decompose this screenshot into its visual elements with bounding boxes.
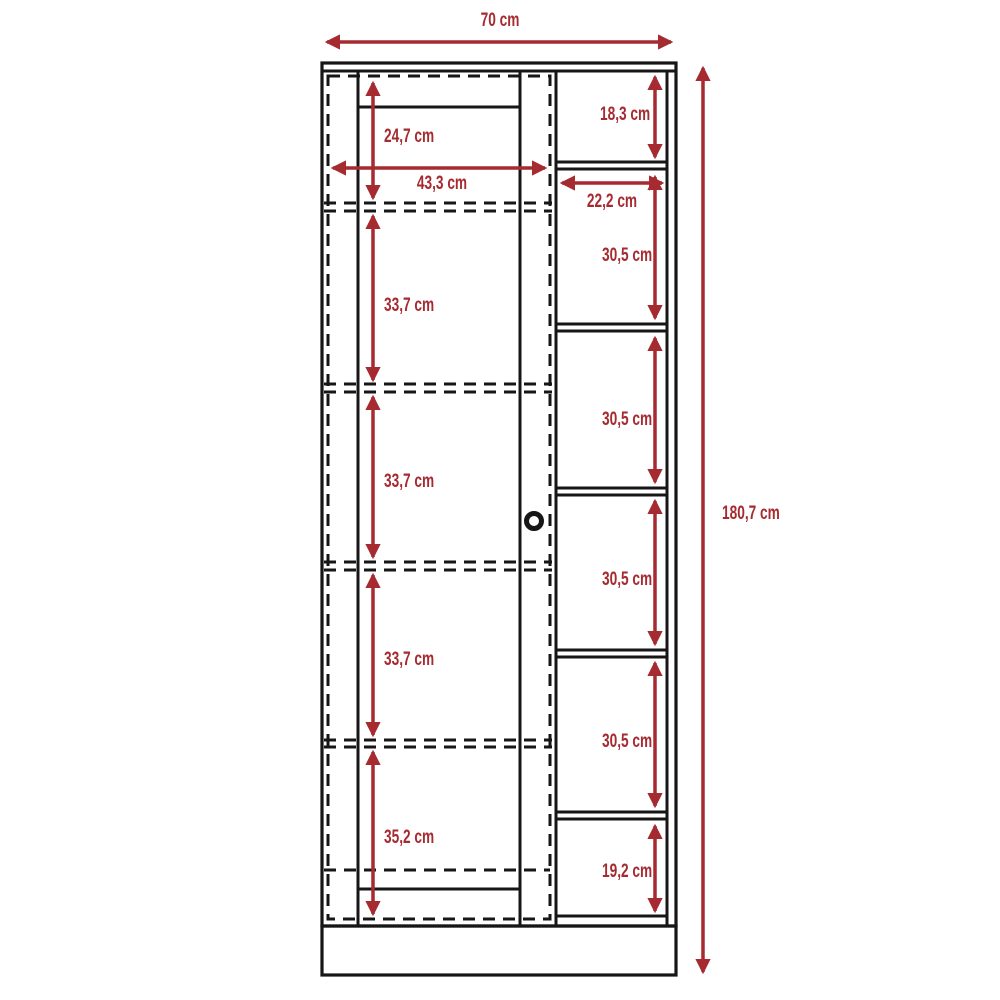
- dim-label-door-inner-width: 43,3 cm: [399, 174, 485, 194]
- dim-label-shelf-section-4: 30,5 cm: [602, 570, 652, 590]
- dim-label-overall-height: 180,7 cm: [722, 504, 780, 524]
- dim-label-door-section-1: 24,7 cm: [384, 127, 434, 147]
- dim-label-door-section-2: 33,7 cm: [384, 296, 434, 316]
- dim-label-shelf-section-1: 18,3 cm: [600, 105, 650, 125]
- dim-label-door-section-4: 33,7 cm: [384, 650, 434, 670]
- dim-label-shelf-inner-width: 22,2 cm: [572, 192, 653, 212]
- dim-label-shelf-section-3: 30,5 cm: [602, 410, 652, 430]
- furniture-dimension-diagram: 70 cm 180,7 cm 24,7 cm 43,3 cm 33,7 cm 3…: [0, 0, 1000, 1000]
- door-knob: [527, 514, 542, 529]
- diagram-canvas: [0, 0, 1000, 1000]
- dim-label-shelf-section-5: 30,5 cm: [602, 732, 652, 752]
- dim-label-door-section-3: 33,7 cm: [384, 472, 434, 492]
- door-outline-dashed: [328, 76, 550, 919]
- dim-label-door-section-5: 35,2 cm: [384, 828, 434, 848]
- base-plinth: [322, 926, 676, 975]
- dim-label-shelf-section-6: 19,2 cm: [602, 862, 652, 882]
- dim-label-shelf-section-2: 30,5 cm: [602, 246, 652, 266]
- dim-label-overall-width: 70 cm: [457, 11, 543, 31]
